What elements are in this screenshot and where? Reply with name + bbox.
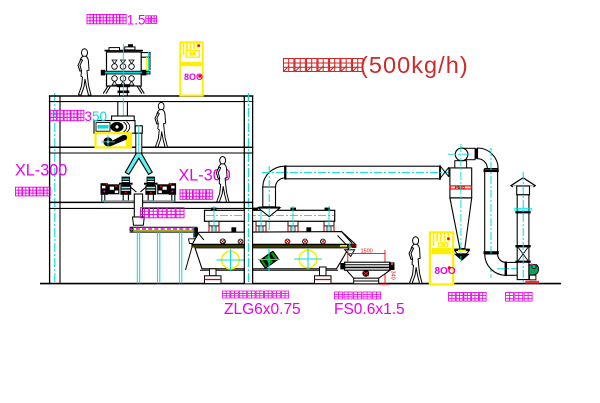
svg-text:3: 3: [85, 109, 93, 124]
svg-text:8OO: 8OO: [435, 266, 456, 277]
svg-text:ZLG6x0.75: ZLG6x0.75: [224, 301, 301, 318]
svg-text:1500: 1500: [361, 249, 373, 255]
svg-text:340: 340: [390, 271, 396, 280]
svg-text:1.5: 1.5: [127, 13, 146, 28]
svg-text:50: 50: [92, 109, 107, 124]
svg-text:XL-300: XL-300: [15, 162, 67, 180]
svg-text:(500kg/h): (500kg/h): [360, 52, 469, 78]
svg-text:P600: P600: [455, 185, 465, 190]
svg-text:FS0.6x1.5: FS0.6x1.5: [334, 301, 405, 318]
